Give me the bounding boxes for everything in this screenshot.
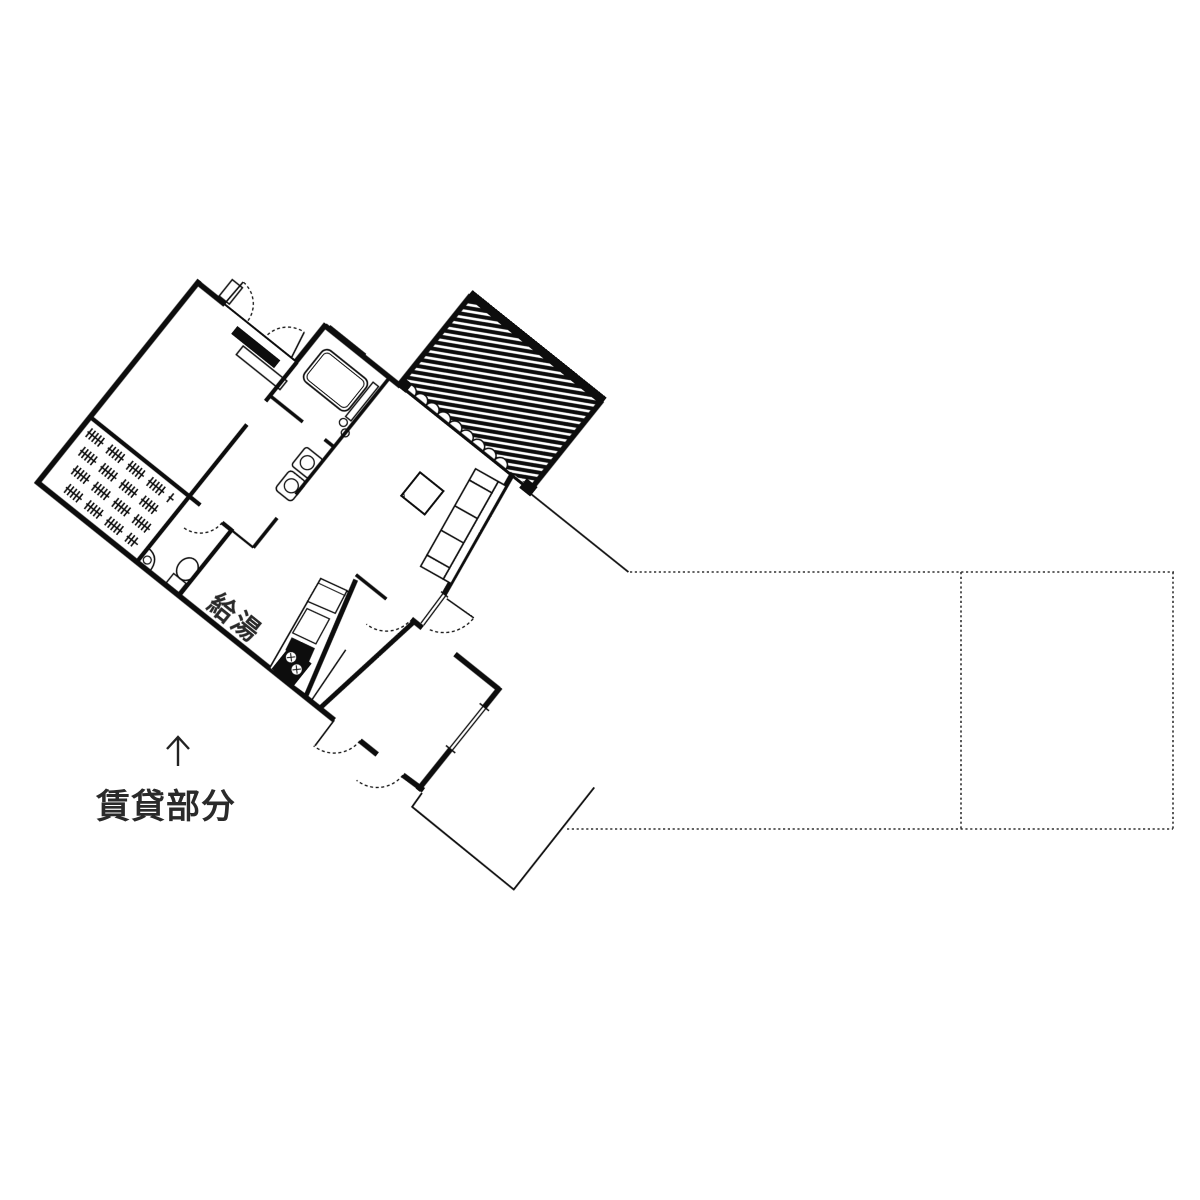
svg-text:賃貸部分: 賃貸部分	[95, 788, 236, 826]
